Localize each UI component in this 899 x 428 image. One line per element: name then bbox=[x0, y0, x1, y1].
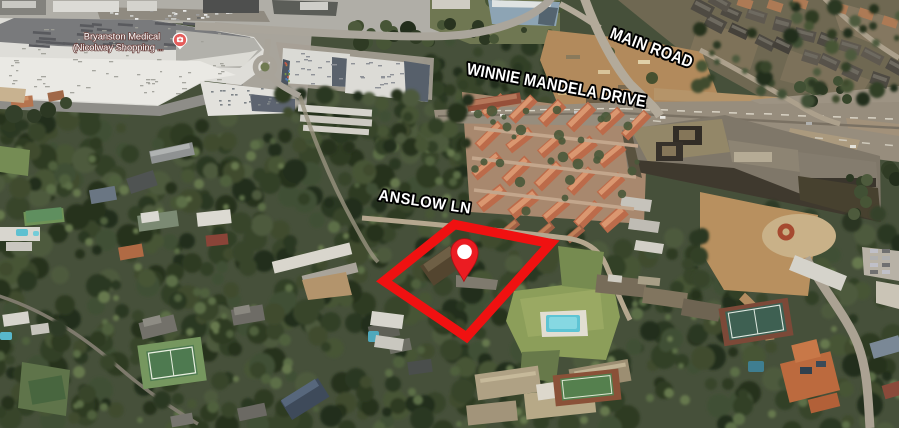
svg-text:Bryanston Medical: Bryanston Medical bbox=[84, 32, 160, 42]
svg-text:(Nicolway Shopping ...: (Nicolway Shopping ... bbox=[73, 43, 164, 53]
